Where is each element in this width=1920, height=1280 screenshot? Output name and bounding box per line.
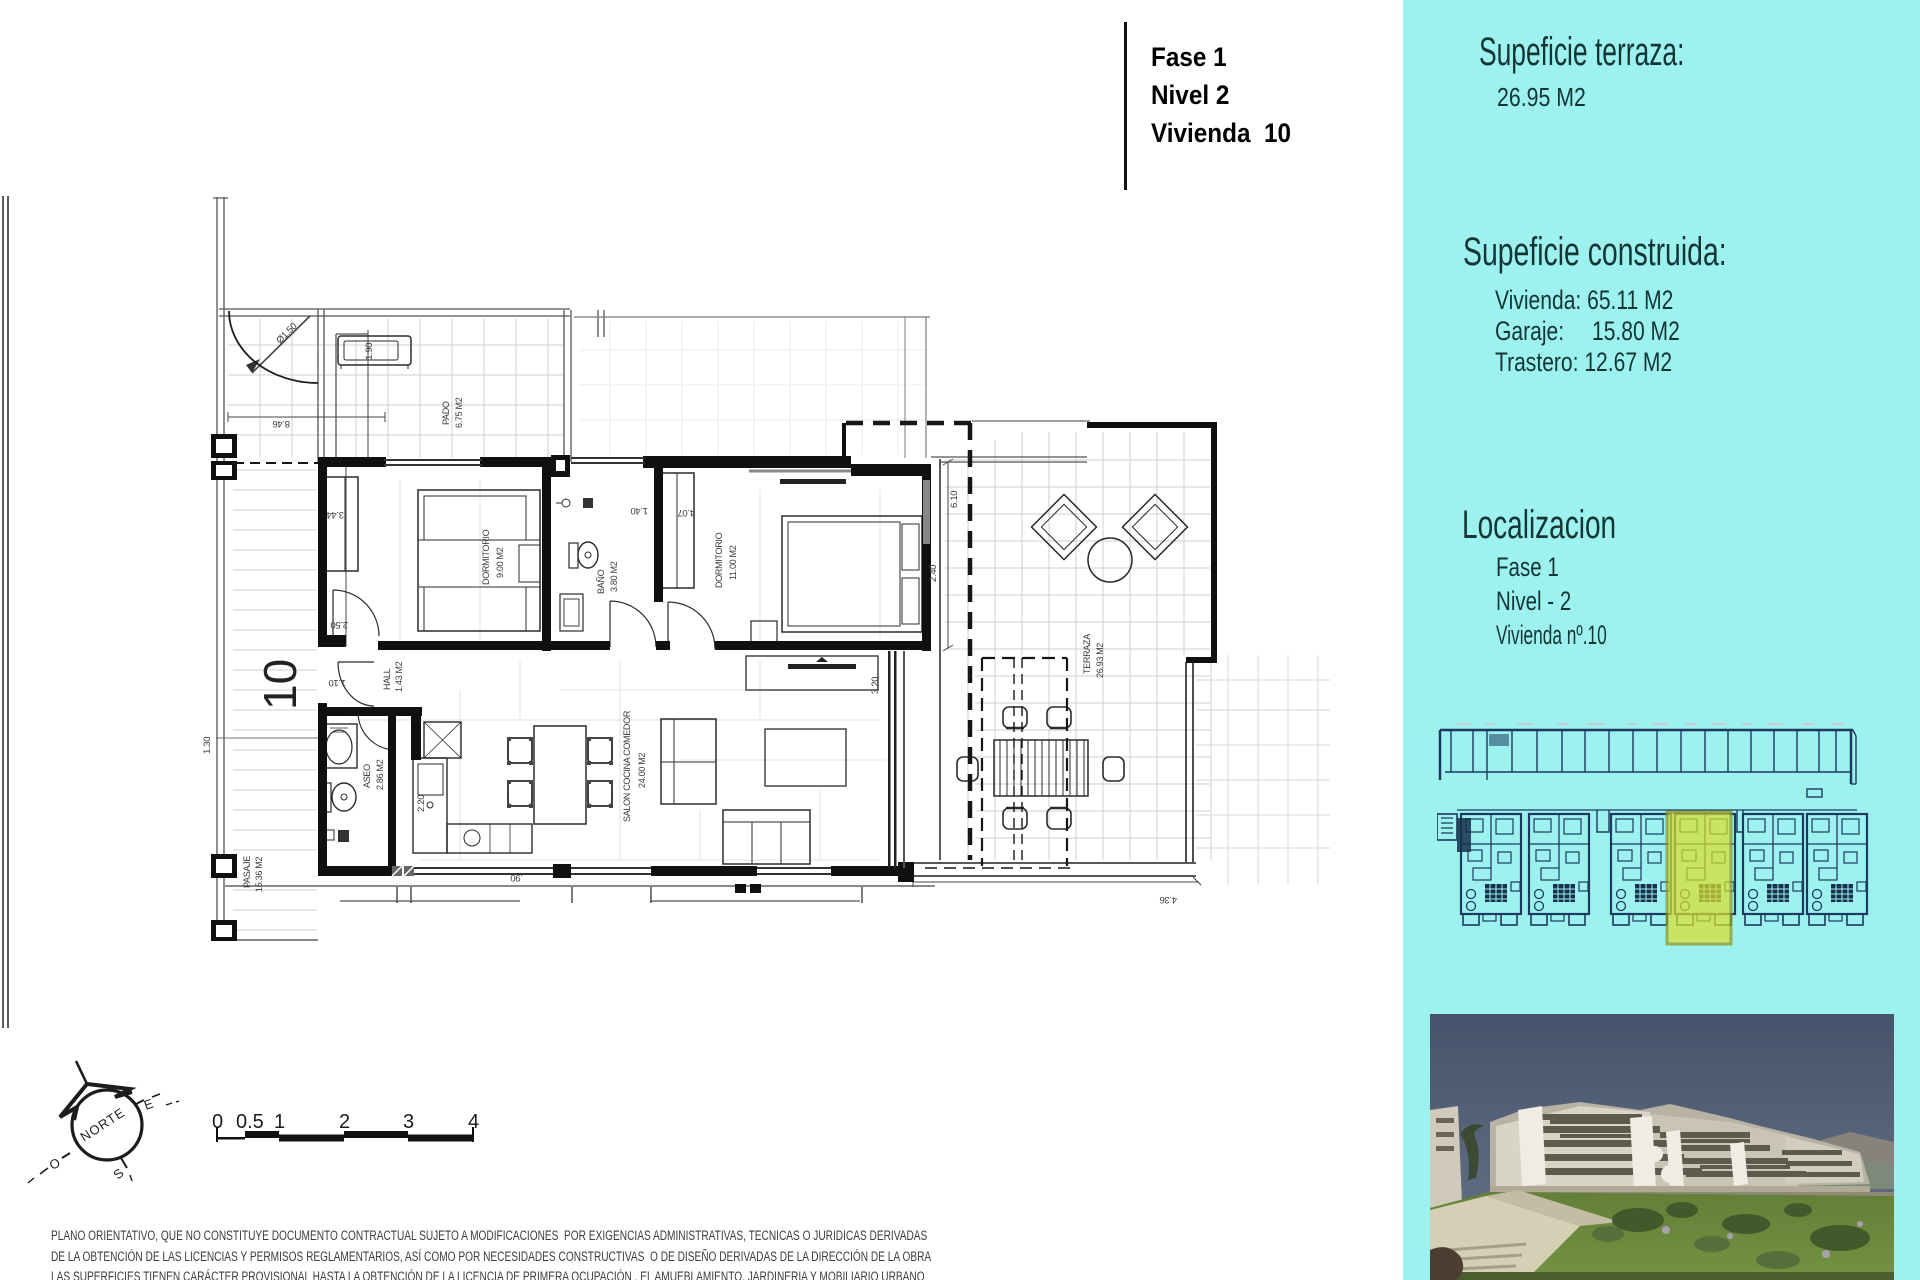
svg-text:6.75 M2: 6.75 M2: [454, 397, 464, 428]
svg-text:DORMITORIO: DORMITORIO: [481, 529, 491, 585]
svg-text:S: S: [110, 1165, 127, 1182]
svg-text:24.00 M2: 24.00 M2: [637, 753, 647, 788]
svg-text:0.5: 0.5: [236, 1111, 264, 1133]
svg-text:ASEO: ASEO: [362, 764, 372, 788]
svg-text:PASAJE: PASAJE: [242, 856, 252, 888]
svg-text:2.40: 2.40: [928, 565, 939, 582]
svg-text:4.07: 4.07: [678, 507, 695, 518]
svg-text:3.20: 3.20: [870, 677, 881, 694]
svg-text:TERRAZA: TERRAZA: [1082, 634, 1092, 674]
svg-text:8.46: 8.46: [273, 418, 290, 429]
svg-text:PADO: PADO: [441, 401, 451, 425]
svg-text:1.43 M2: 1.43 M2: [394, 661, 404, 692]
svg-text:4.36: 4.36: [1160, 894, 1177, 905]
svg-text:O: O: [47, 1155, 63, 1173]
svg-text:11.00 M2: 11.00 M2: [728, 545, 738, 580]
svg-text:SALON COCINA COMEDOR: SALON COCINA COMEDOR: [622, 710, 632, 822]
svg-text:9.00 M2: 9.00 M2: [495, 547, 505, 578]
svg-text:Ø1.50: Ø1.50: [274, 321, 299, 346]
svg-text:.90: .90: [511, 872, 523, 883]
svg-text:26.93 M2: 26.93 M2: [1095, 643, 1105, 678]
svg-text:1.40: 1.40: [631, 505, 648, 516]
svg-text:E: E: [142, 1096, 156, 1113]
svg-text:NORTE: NORTE: [77, 1105, 127, 1145]
svg-text:HALL: HALL: [382, 668, 392, 690]
svg-text:3: 3: [403, 1111, 414, 1133]
svg-text:2.86 M2: 2.86 M2: [375, 759, 385, 790]
svg-text:2.50: 2.50: [331, 619, 348, 630]
svg-text:2.20: 2.20: [416, 795, 427, 812]
svg-text:3.80 M2: 3.80 M2: [609, 561, 619, 592]
svg-text:DORMITORIO: DORMITORIO: [714, 532, 724, 588]
svg-text:2: 2: [339, 1111, 350, 1133]
svg-text:3.44: 3.44: [327, 509, 344, 520]
svg-text:1.90: 1.90: [364, 343, 375, 360]
svg-text:BAÑO: BAÑO: [596, 569, 606, 594]
svg-text:15.36 M2: 15.36 M2: [254, 857, 264, 892]
svg-text:1: 1: [274, 1111, 285, 1133]
svg-text:1.10: 1.10: [329, 677, 346, 688]
svg-text:1.30: 1.30: [202, 737, 213, 754]
svg-text:6.10: 6.10: [949, 491, 960, 508]
svg-text:10: 10: [254, 659, 306, 710]
